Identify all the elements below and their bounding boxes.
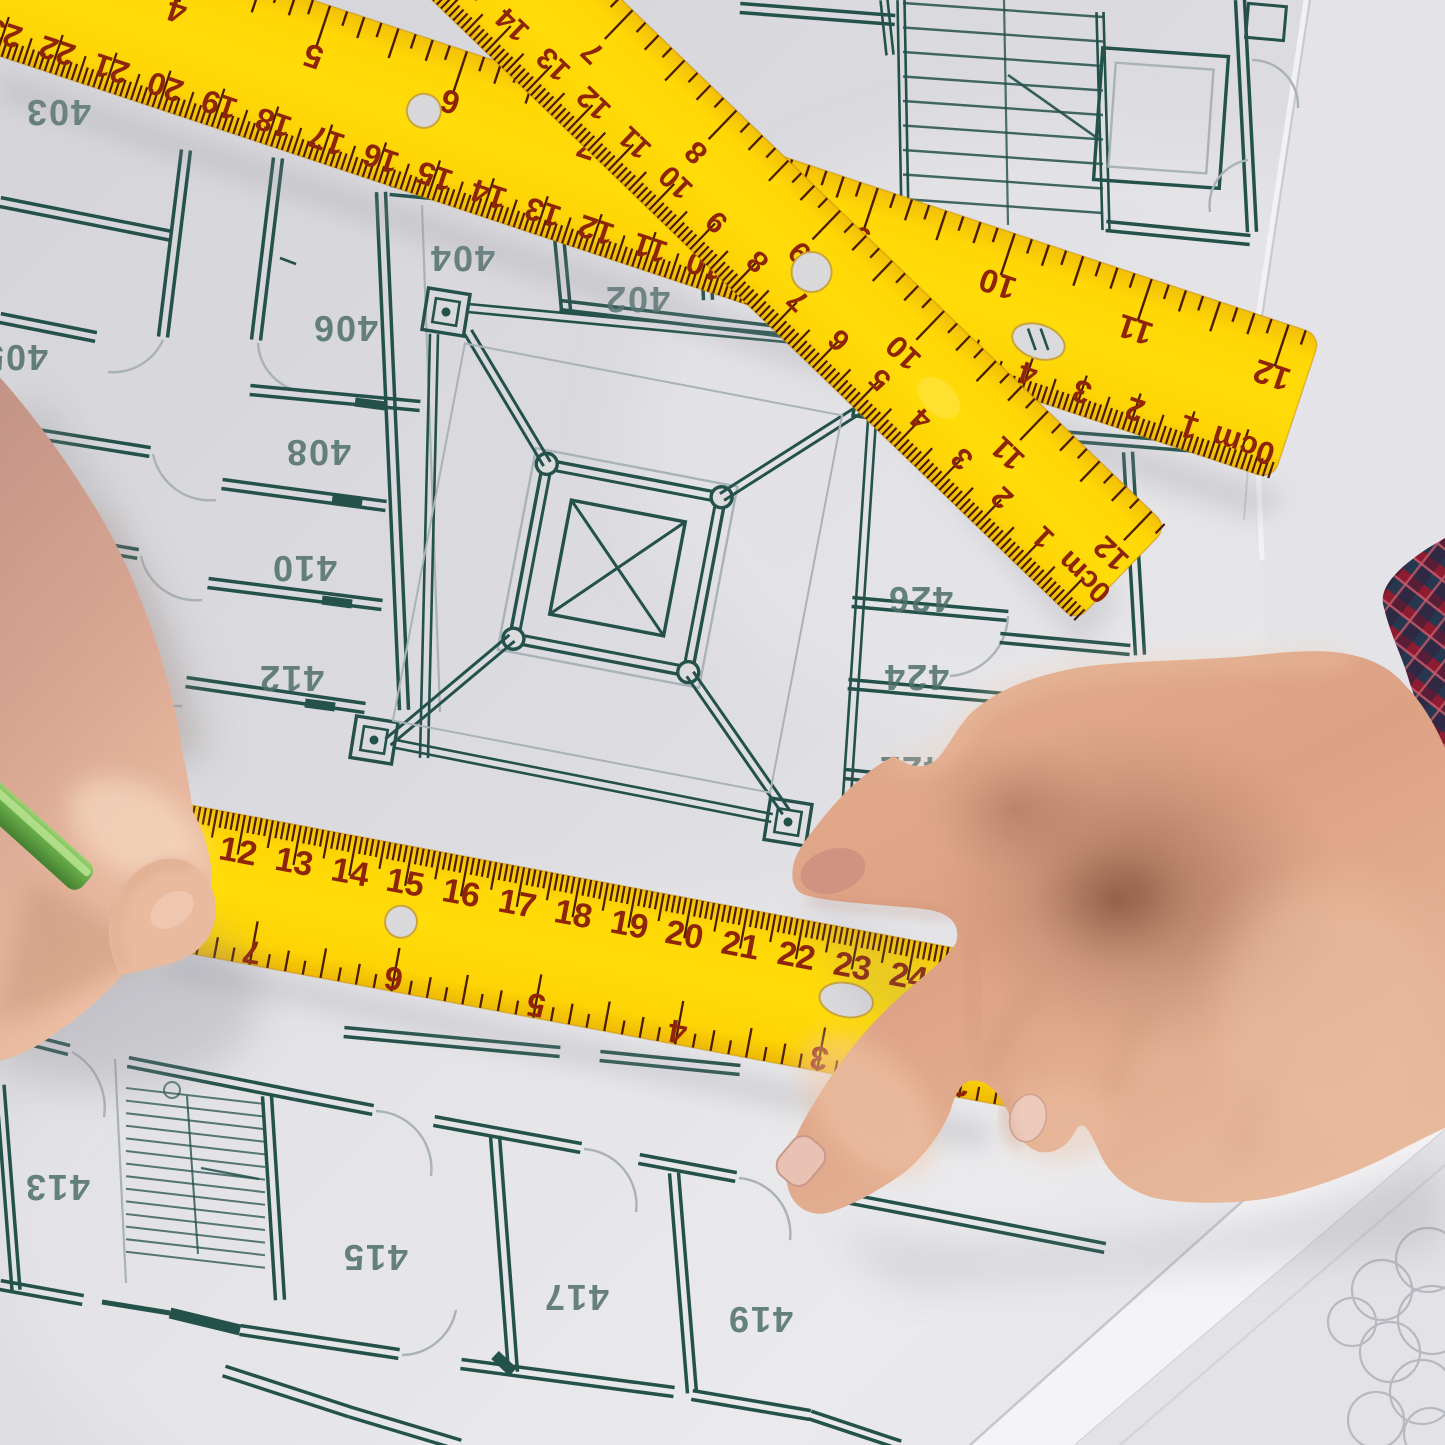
svg-text:19: 19 bbox=[607, 903, 651, 947]
svg-text:406: 406 bbox=[312, 308, 378, 349]
svg-text:12: 12 bbox=[216, 829, 260, 873]
svg-text:14: 14 bbox=[328, 850, 372, 894]
svg-text:18: 18 bbox=[551, 892, 595, 936]
svg-text:16: 16 bbox=[439, 871, 483, 915]
svg-text:17: 17 bbox=[495, 882, 539, 926]
svg-text:410: 410 bbox=[271, 548, 337, 589]
svg-text:415: 415 bbox=[342, 1237, 408, 1278]
svg-text:413: 413 bbox=[24, 1167, 90, 1208]
svg-text:426: 426 bbox=[887, 579, 953, 620]
svg-text:20: 20 bbox=[662, 913, 706, 957]
svg-text:408: 408 bbox=[285, 432, 351, 473]
svg-text:412: 412 bbox=[258, 658, 324, 699]
svg-text:13: 13 bbox=[272, 840, 316, 884]
svg-text:22: 22 bbox=[774, 934, 818, 978]
svg-text:21: 21 bbox=[718, 923, 762, 967]
svg-text:15: 15 bbox=[383, 861, 427, 905]
svg-text:417: 417 bbox=[543, 1277, 609, 1318]
svg-text:419: 419 bbox=[727, 1299, 793, 1340]
svg-text:424: 424 bbox=[883, 657, 949, 698]
svg-text:405: 405 bbox=[0, 337, 48, 378]
